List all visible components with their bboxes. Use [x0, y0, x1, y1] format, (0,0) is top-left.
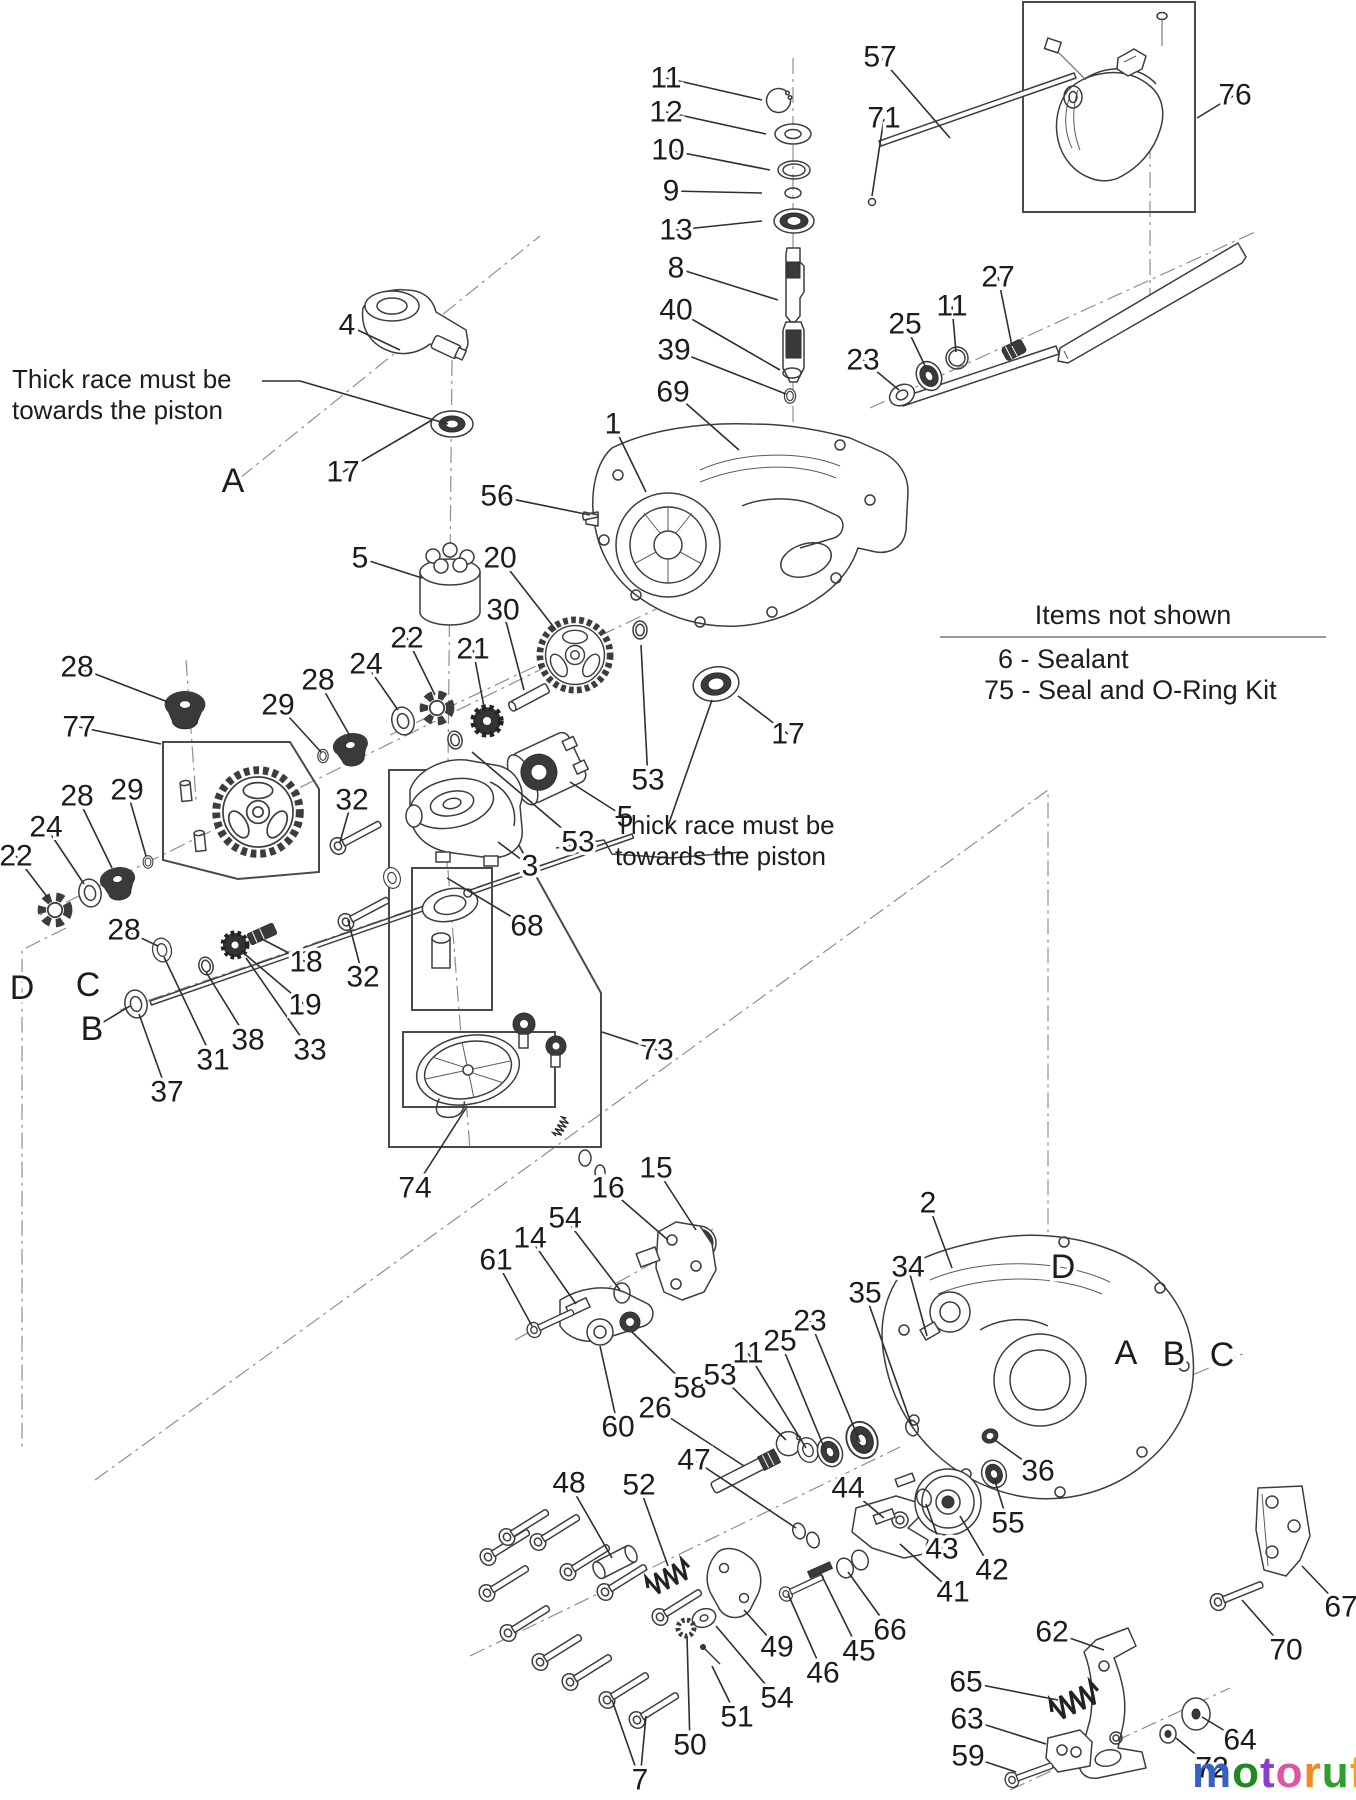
part-callout-69: 69	[656, 376, 689, 409]
part-callout-53: 53	[561, 826, 594, 859]
part-callout-22: 22	[0, 840, 33, 873]
part-callout-65: 65	[949, 1666, 982, 1699]
callout-leader-line	[810, 1321, 860, 1442]
part-callout-24: 24	[349, 648, 382, 681]
part-callout-53: 53	[631, 764, 664, 797]
part-callout-23: 23	[846, 344, 879, 377]
part-callout-20: 20	[483, 542, 516, 575]
part-callout-10: 10	[651, 134, 684, 167]
motoruf-logo-letter: t	[1260, 1748, 1276, 1797]
part-callout-61: 61	[479, 1244, 512, 1277]
items-not-shown-block: Items not shown 6 - Sealant75 - Seal and…	[940, 600, 1326, 706]
part-callout-52: 52	[622, 1469, 655, 1502]
part-callout-17: 17	[771, 718, 804, 751]
part-callout-74: 74	[398, 1172, 431, 1205]
part-callout-25: 25	[763, 1325, 796, 1358]
part-callout-41: 41	[936, 1576, 969, 1609]
part-callout-29: 29	[110, 774, 143, 807]
part-callout-28: 28	[107, 914, 140, 947]
axis-lines	[22, 58, 1255, 1790]
part-callout-39: 39	[657, 334, 690, 367]
part-callout-23: 23	[793, 1305, 826, 1338]
callout-leader-line	[360, 558, 422, 578]
part-callout-C: C	[76, 966, 101, 1004]
part-callout-7: 7	[632, 1764, 649, 1797]
items-not-shown-rule	[940, 636, 1326, 638]
part-callout-D: D	[10, 969, 35, 1007]
part-callout-35: 35	[848, 1277, 881, 1310]
part-callout-28: 28	[60, 651, 93, 684]
part-callout-38: 38	[231, 1024, 264, 1057]
items-not-shown-entry: 75 - Seal and O-Ring Kit	[940, 675, 1326, 706]
part-callout-40: 40	[659, 294, 692, 327]
motoruf-logo-letter: f	[1350, 1748, 1356, 1797]
part-callout-49: 49	[760, 1631, 793, 1664]
callout-leader-line	[780, 1341, 826, 1452]
part-callout-19: 19	[288, 989, 321, 1022]
part-callout-70: 70	[1269, 1634, 1302, 1667]
part-callout-45: 45	[842, 1635, 875, 1668]
housing-right-drawing	[882, 1235, 1193, 1535]
motoruf-logo-letter: o	[1232, 1748, 1260, 1797]
bypass-idler-drawing	[525, 1222, 716, 1345]
motoruf-logo-letter: u	[1322, 1748, 1350, 1797]
part-callout-62: 62	[1035, 1616, 1068, 1649]
part-callout-A: A	[222, 462, 245, 500]
motoruf-logo: motoruf.de	[1192, 1748, 1356, 1798]
exploded-diagram-canvas: 11121091384039695771762711252314A1756520…	[0, 0, 1356, 1800]
part-callout-17: 17	[326, 456, 359, 489]
part-callout-76: 76	[1218, 79, 1251, 112]
part-callout-68: 68	[510, 910, 543, 943]
part-callout-11: 11	[732, 1337, 763, 1370]
part-callout-B: B	[1163, 1335, 1186, 1373]
part-callout-11: 11	[936, 290, 967, 323]
part-callout-15: 15	[639, 1152, 672, 1185]
piston-block-drawing	[420, 543, 480, 625]
callout-leader-line	[641, 645, 648, 780]
part-callout-66: 66	[873, 1614, 906, 1647]
part-callout-31: 31	[196, 1044, 229, 1077]
part-callout-22: 22	[390, 622, 423, 655]
callout-leader-line	[674, 350, 786, 394]
part-callout-1: 1	[605, 408, 622, 441]
part-callout-67: 67	[1324, 1591, 1356, 1624]
part-callout-63: 63	[950, 1703, 983, 1736]
part-callout-28: 28	[301, 664, 334, 697]
part-callout-54: 54	[760, 1682, 793, 1715]
part-callout-28: 28	[60, 780, 93, 813]
part-callout-56: 56	[480, 480, 513, 513]
part-callout-48: 48	[552, 1467, 585, 1500]
part-callout-77: 77	[62, 711, 95, 744]
part-callout-5: 5	[352, 542, 369, 575]
part-callout-30: 30	[486, 594, 519, 627]
input-shaft-stack-drawing	[731, 88, 814, 462]
note-thick-race-left: Thick race must be towards the piston	[12, 364, 282, 425]
part-callout-26: 26	[638, 1392, 671, 1425]
part-callout-43: 43	[925, 1533, 958, 1566]
part-callout-46: 46	[806, 1657, 839, 1690]
callout-leader-line	[671, 191, 762, 193]
motoruf-logo-letter: m	[1192, 1748, 1232, 1797]
part-callout-13: 13	[659, 214, 692, 247]
part-callout-29: 29	[261, 689, 294, 722]
part-callout-44: 44	[831, 1472, 864, 1505]
part-callout-58: 58	[673, 1372, 706, 1405]
part-callout-37: 37	[150, 1076, 183, 1109]
part-callout-12: 12	[649, 96, 682, 129]
part-callout-36: 36	[1021, 1455, 1054, 1488]
part-callout-B: B	[81, 1010, 104, 1048]
part-callout-18: 18	[289, 946, 322, 979]
part-callout-24: 24	[29, 811, 62, 844]
exploded-parts-diagram-page: 11121091384039695771762711252314A1756520…	[0, 0, 1356, 1800]
part-callout-33: 33	[293, 1034, 326, 1067]
part-callout-57: 57	[863, 41, 896, 74]
items-not-shown-entry: 6 - Sealant	[940, 644, 1326, 675]
part-callout-D: D	[1051, 1248, 1076, 1286]
part-callout-2: 2	[920, 1187, 937, 1220]
items-not-shown-title: Items not shown	[940, 600, 1326, 631]
part-callout-59: 59	[951, 1740, 984, 1773]
motoruf-logo-letter: o	[1276, 1748, 1304, 1797]
part-callout-4: 4	[339, 309, 356, 342]
inset-box-76	[1023, 2, 1195, 212]
part-callout-34: 34	[891, 1251, 924, 1284]
part-callout-55: 55	[991, 1507, 1024, 1540]
motoruf-logo-letter: r	[1304, 1748, 1322, 1797]
housing-left-drawing	[583, 424, 908, 627]
part-callout-51: 51	[720, 1701, 753, 1734]
part-callout-60: 60	[601, 1411, 634, 1444]
items-not-shown-list: 6 - Sealant75 - Seal and O-Ring Kit	[940, 644, 1326, 706]
part-callout-14: 14	[513, 1222, 546, 1255]
part-callout-32: 32	[335, 784, 368, 817]
part-callout-16: 16	[591, 1172, 624, 1205]
motoruf-logo-word: motoruf	[1192, 1748, 1356, 1797]
part-callout-50: 50	[673, 1729, 706, 1762]
part-callout-54: 54	[548, 1202, 581, 1235]
part-callout-27: 27	[981, 261, 1014, 294]
part-callout-25: 25	[888, 308, 921, 341]
bolt-set-drawing	[476, 1504, 705, 1731]
part-callout-8: 8	[668, 252, 685, 285]
part-callout-42: 42	[975, 1554, 1008, 1587]
note-thick-race-right: Thick race must be towards the piston	[615, 810, 885, 871]
part-callout-11: 11	[650, 62, 681, 95]
part-callout-3: 3	[522, 850, 539, 883]
cylinder-block-drawing	[501, 663, 741, 809]
part-callout-C: C	[1210, 1336, 1235, 1374]
part-callout-47: 47	[677, 1444, 710, 1477]
part-callout-21: 21	[456, 633, 489, 666]
part-callout-A: A	[1115, 1334, 1138, 1372]
part-callout-32: 32	[346, 961, 379, 994]
part-callout-73: 73	[640, 1034, 673, 1067]
part-callout-71: 71	[867, 102, 900, 135]
part-callout-9: 9	[663, 175, 680, 208]
